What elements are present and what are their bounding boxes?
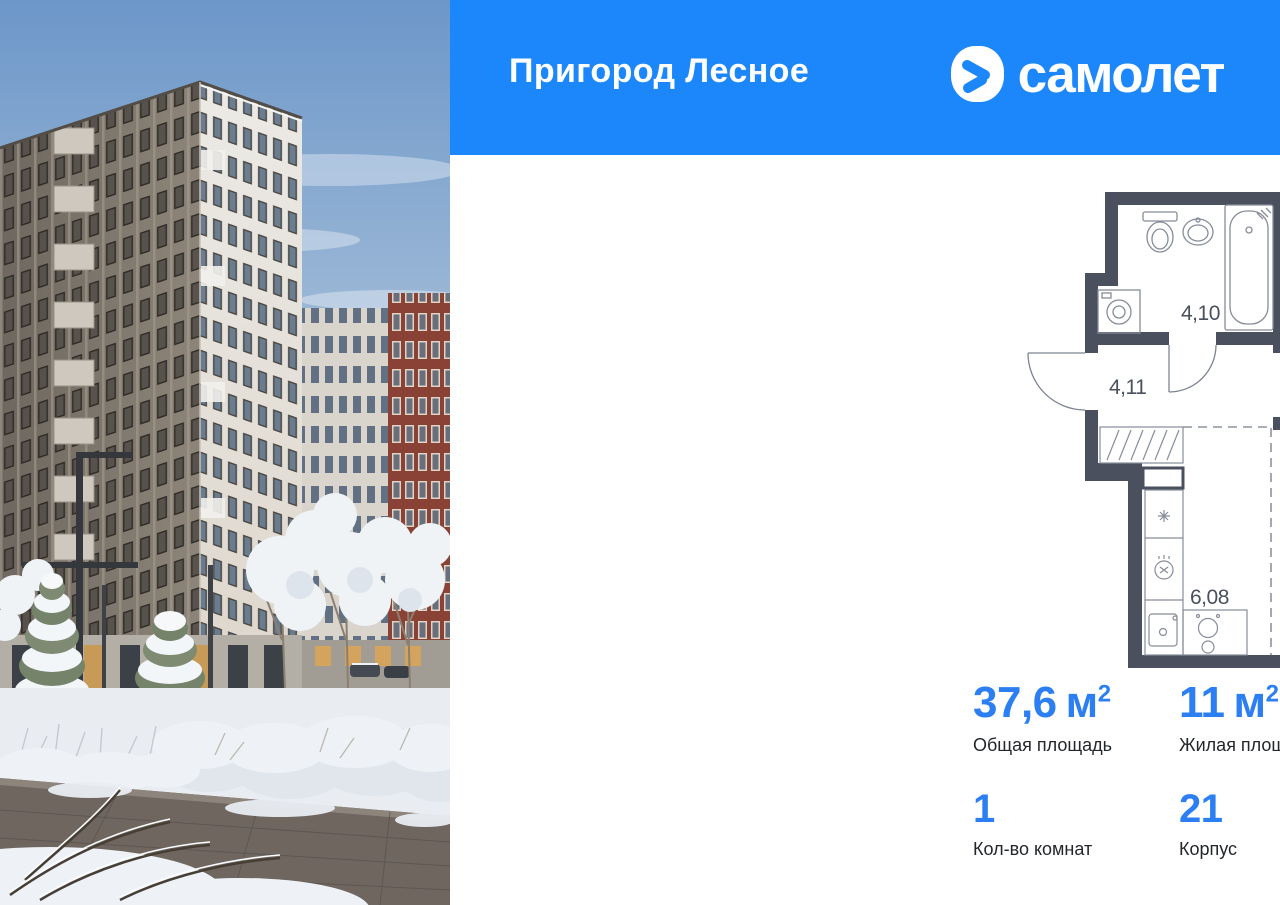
samolet-logo-icon: [951, 46, 1004, 102]
listing-card: Пригород Лесное самолет: [0, 0, 1280, 905]
info-panel: Пригород Лесное самолет: [450, 0, 1280, 905]
building-brick: [388, 293, 450, 700]
stat-building-value: 21: [1179, 788, 1280, 830]
header-band: Пригород Лесное самолет: [450, 0, 1280, 155]
stat-living-area-value: 11м2: [1179, 680, 1280, 726]
stat-rooms: 1 Кол-во комнат: [973, 788, 1179, 860]
project-title: Пригород Лесное: [509, 52, 809, 91]
stat-total-area: 37,6м2 Общая площадь: [973, 680, 1179, 756]
stat-rooms-label: Кол-во комнат: [973, 839, 1179, 860]
label-kitchen: 6,08: [1190, 586, 1229, 609]
apartment-stats: 37,6м2 Общая площадь 11м2 Жилая площадь …: [973, 680, 1280, 860]
floor-plan: 4,10 4,11 10,95 11,76 6,08 2,11 (0,63): [1025, 186, 1280, 674]
brand-name: самолет: [1018, 48, 1224, 101]
plan-doors: [1028, 333, 1280, 415]
stat-living-area-label: Жилая площадь: [1179, 735, 1280, 756]
stat-rooms-value: 1: [973, 788, 1179, 830]
stat-total-area-label: Общая площадь: [973, 735, 1179, 756]
hall-wardrobe: [1100, 427, 1183, 463]
stat-living-area: 11м2 Жилая площадь: [1179, 680, 1280, 756]
label-hallway: 4,11: [1109, 376, 1146, 399]
shaft-box: [1143, 468, 1183, 488]
stat-building: 21 Корпус: [1179, 788, 1280, 860]
stat-building-label: Корпус: [1179, 839, 1280, 860]
zone-divider: [1183, 427, 1271, 655]
kitchen-counter: [1145, 490, 1247, 655]
stat-total-area-value: 37,6м2: [973, 680, 1179, 726]
label-bathroom: 4,10: [1181, 302, 1220, 325]
brand-logo: самолет: [951, 46, 1224, 102]
project-photo: [0, 0, 450, 905]
